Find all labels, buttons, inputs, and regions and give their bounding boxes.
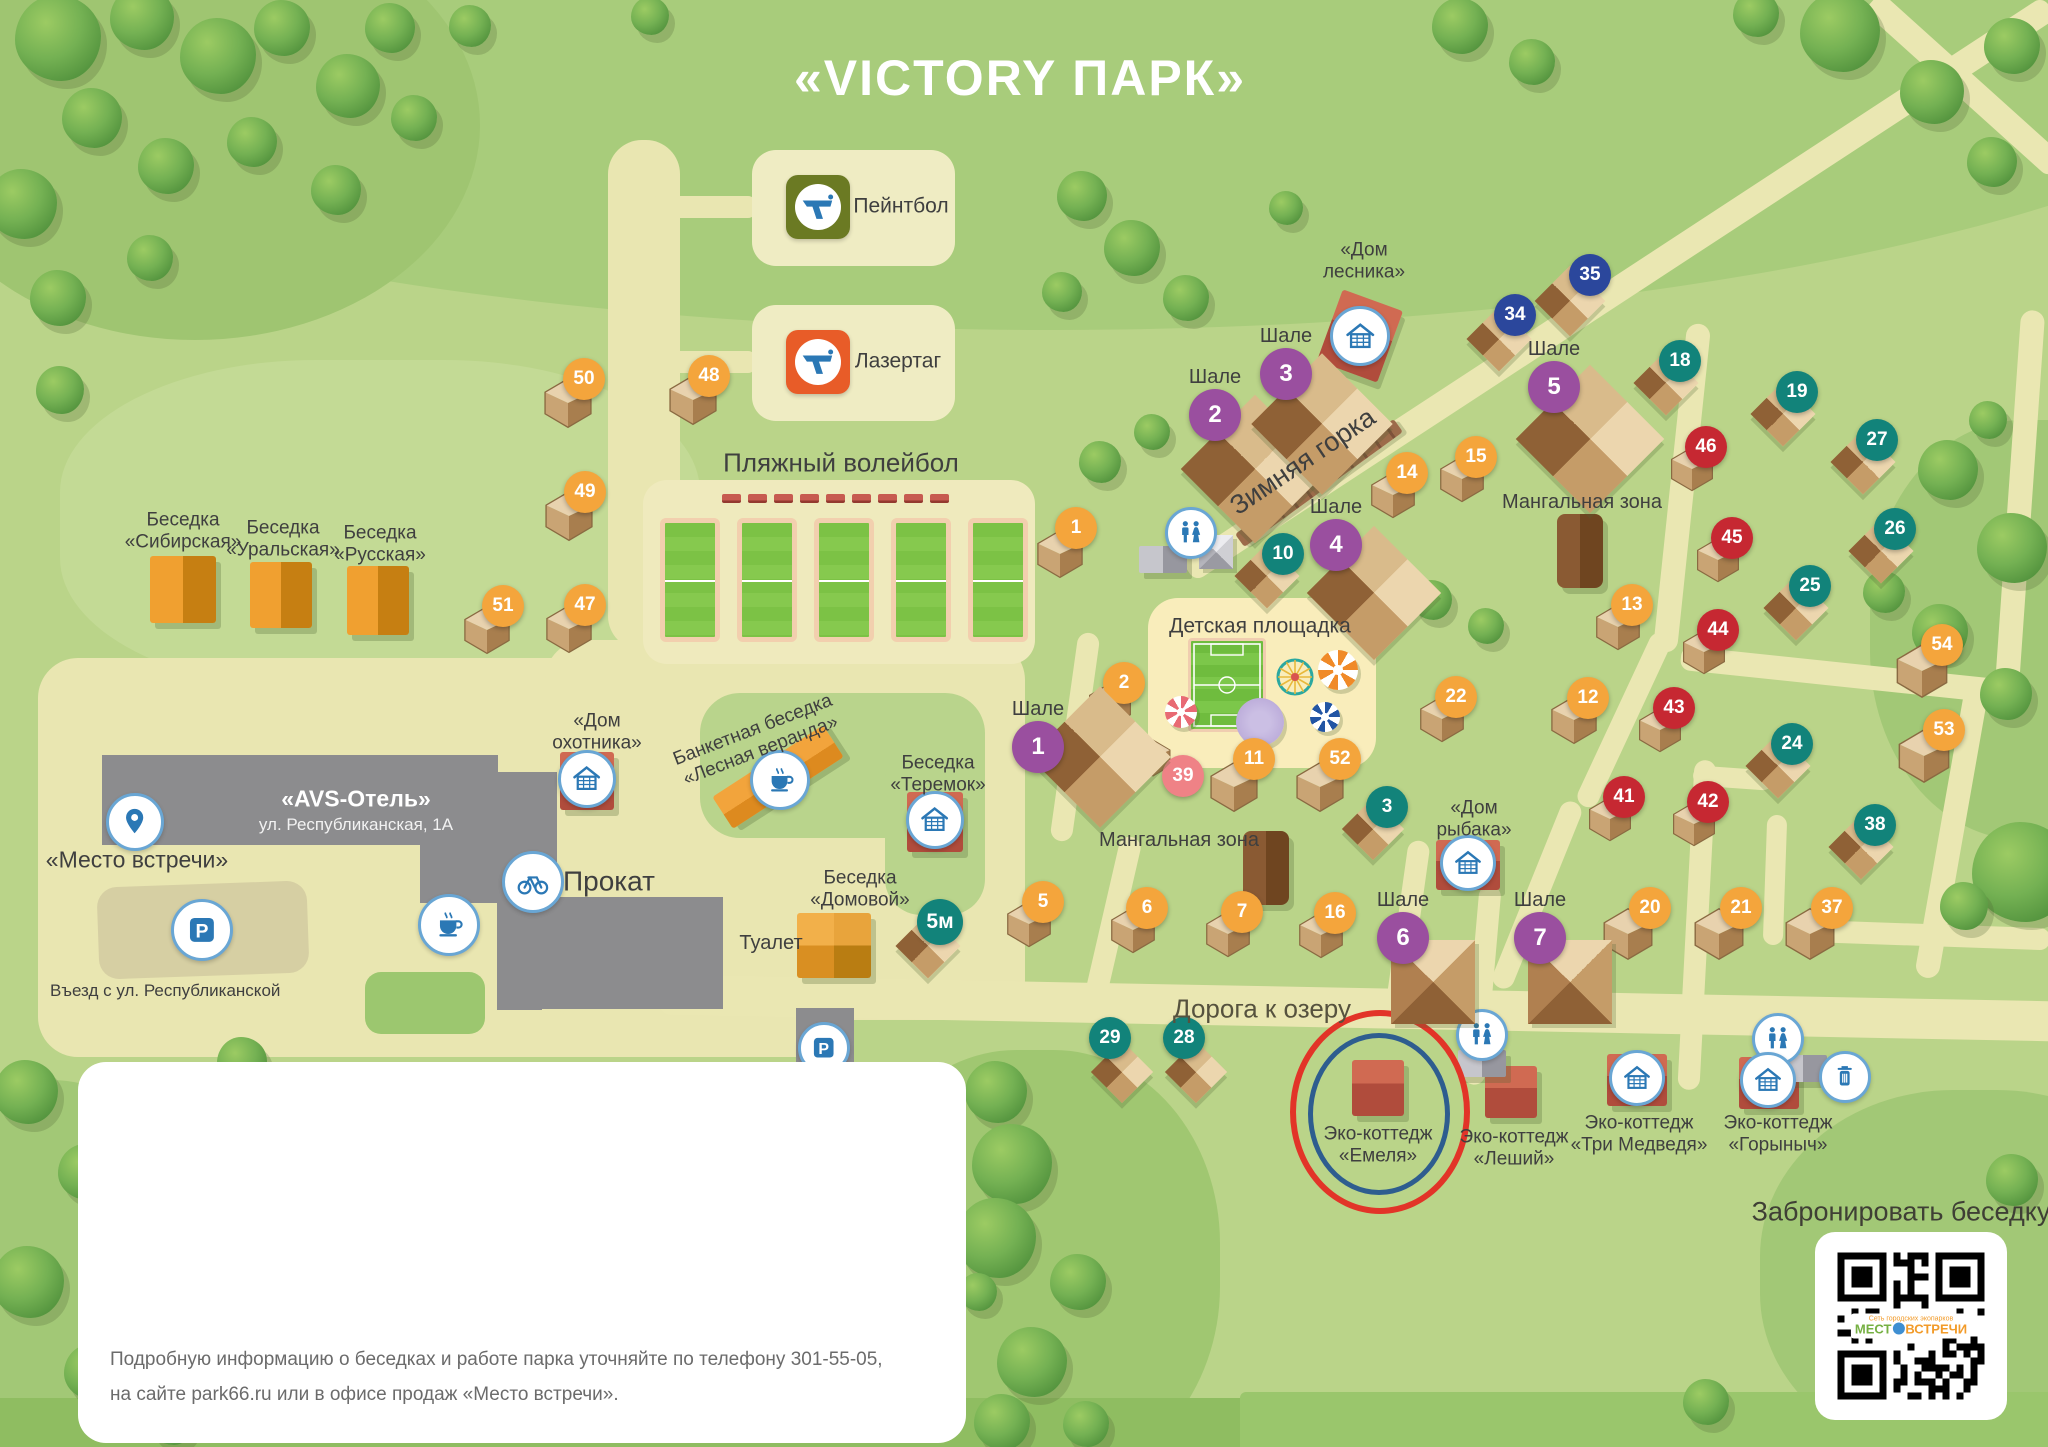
tree [1980, 668, 2032, 720]
map-label: Эко-коттедж«Емеля» [1324, 1124, 1433, 1169]
map-label: Беседка«Русская» [334, 523, 426, 568]
carousel-hub [1321, 713, 1328, 720]
map-label: Детская площадка [1169, 615, 1351, 640]
tree [1063, 1401, 1109, 1447]
tree [1984, 18, 2040, 74]
tree [1042, 272, 1082, 312]
tree [1683, 1379, 1729, 1425]
bench [800, 494, 819, 503]
tree [1269, 191, 1303, 225]
plaza-area [648, 196, 756, 218]
map-label: Прокат [563, 864, 655, 897]
marker-43: 43 [1653, 687, 1695, 729]
marker-47: 47 [564, 584, 606, 626]
tree [15, 0, 101, 81]
bike-icon [502, 851, 564, 913]
wc-icon [1165, 507, 1217, 559]
bench [722, 494, 741, 503]
map-label: Дорога к озеру [1173, 994, 1351, 1025]
map-label: Туалет [739, 932, 802, 956]
marker-52: 52 [1319, 738, 1361, 780]
marker-35: 35 [1569, 254, 1611, 296]
qr-code: Сеть городских экопарков МЕСТВСТРЕЧИ [1815, 1232, 2007, 1420]
marker-16: 16 [1314, 892, 1356, 934]
marker-7: 7 [1514, 912, 1566, 964]
tree [311, 165, 361, 215]
gazebo-uralskaya [250, 562, 312, 628]
carousel [1318, 650, 1358, 690]
mangal-zone-building [1557, 514, 1603, 588]
tree [1969, 401, 2007, 439]
map-label: Мангальная зона [1099, 829, 1259, 853]
court-net-line [665, 580, 715, 582]
legend-note-line2: на сайте park66.ru или в офисе продаж «М… [110, 1384, 619, 1405]
park-title: «VICTORY ПАРК» [794, 49, 1246, 107]
marker-37: 37 [1811, 887, 1853, 929]
tree [180, 18, 256, 94]
map-label: Пляжный волейбол [723, 448, 959, 479]
parking-icon: P [171, 899, 233, 961]
house-icon [1330, 306, 1390, 366]
marker-2: 2 [1189, 389, 1241, 441]
marker-48: 48 [688, 355, 730, 397]
marker-44: 44 [1697, 609, 1739, 651]
marker-49: 49 [564, 471, 606, 513]
tree [1163, 275, 1209, 321]
map-label: «Место встречи» [46, 846, 228, 873]
marker-54: 54 [1921, 624, 1963, 666]
marker-18: 18 [1659, 340, 1701, 382]
marker-5: 5 [1528, 361, 1580, 413]
marker-29: 29 [1089, 1017, 1131, 1059]
tree [1057, 171, 1107, 221]
carousel-hub [1333, 665, 1343, 675]
tree [391, 95, 437, 141]
marker-14: 14 [1386, 452, 1428, 494]
emelya-highlight-ring-blue [1308, 1033, 1450, 1195]
map-label: «Домлесника» [1323, 240, 1405, 285]
volleyball-court [737, 518, 797, 642]
tree [1050, 1254, 1106, 1310]
marker-45: 45 [1711, 517, 1753, 559]
house-icon [1609, 1050, 1665, 1106]
chalet-label: Шале [1189, 366, 1241, 390]
marker-15: 15 [1455, 436, 1497, 478]
svg-text:P: P [819, 1041, 830, 1058]
hotel-building [540, 897, 723, 1009]
map-label: Эко-коттедж«Три Медведя» [1571, 1113, 1708, 1158]
carousel [1165, 696, 1197, 728]
house-icon [558, 750, 616, 808]
map-label: «AVS-Отель» [281, 785, 431, 812]
marker-27: 27 [1856, 419, 1898, 461]
marker-50: 50 [563, 358, 605, 400]
volleyball-court [814, 518, 874, 642]
ferris-wheel [1274, 656, 1316, 698]
tree [1918, 440, 1978, 500]
map-label: «Домрыбака» [1436, 798, 1511, 843]
tree [1977, 513, 2047, 583]
tree [127, 235, 173, 281]
marker-38: 38 [1854, 804, 1896, 846]
bench [904, 494, 923, 503]
lawn-island [365, 972, 485, 1034]
marker-20: 20 [1629, 887, 1671, 929]
court-net-line [819, 580, 869, 582]
tree [997, 1327, 1067, 1397]
marker-6: 6 [1126, 887, 1168, 929]
map-label: «Домохотника» [552, 711, 641, 756]
marker-12: 12 [1567, 677, 1609, 719]
marker-11: 11 [1233, 738, 1275, 780]
hotel-building [497, 898, 542, 1010]
bench [930, 494, 949, 503]
court-net-line [742, 580, 792, 582]
tree [138, 138, 194, 194]
tree [316, 54, 380, 118]
marker-4: 4 [1310, 519, 1362, 571]
gazebo-sibirskaya [150, 556, 216, 623]
tree [1967, 137, 2017, 187]
marker-3: 3 [1366, 786, 1408, 828]
carousel [1310, 702, 1340, 732]
map-label: Въезд с ул. Республиканской [50, 981, 280, 1001]
tree [956, 1198, 1036, 1278]
gun-icon [795, 184, 841, 230]
map-label: Эко-коттедж«Леший» [1460, 1127, 1569, 1172]
tree [36, 366, 84, 414]
bench [826, 494, 845, 503]
tree [1079, 441, 1121, 483]
map-label: Беседка«Домовой» [810, 868, 909, 913]
marker-34: 34 [1494, 294, 1536, 336]
marker-6: 6 [1377, 912, 1429, 964]
booking-title: Забронировать беседку [1752, 1197, 2048, 1228]
marker-51: 51 [482, 585, 524, 627]
house-icon [1740, 1052, 1796, 1108]
tree [62, 88, 122, 148]
house-icon [906, 791, 964, 849]
gazebo-domovoy-building [797, 913, 871, 978]
marker-5м: 5м [917, 899, 963, 945]
tree [1432, 0, 1488, 54]
marker-41: 41 [1603, 776, 1645, 818]
chalet-label: Шале [1310, 496, 1362, 520]
marker-25: 25 [1789, 565, 1831, 607]
bench [878, 494, 897, 503]
food-icon [418, 894, 480, 956]
tree [227, 117, 277, 167]
paintball-icon [786, 175, 850, 239]
tree [449, 5, 491, 47]
marker-22: 22 [1435, 676, 1477, 718]
bench [774, 494, 793, 503]
pin-icon [106, 793, 164, 851]
volleyball-court [891, 518, 951, 642]
marker-10: 10 [1262, 533, 1304, 575]
marker-53: 53 [1923, 709, 1965, 751]
gazebo-russkaya [347, 566, 409, 635]
qr-logo: Сеть городских экопарков МЕСТВСТРЕЧИ [1851, 1314, 1971, 1339]
tree [631, 0, 669, 35]
chalet-label: Шале [1377, 889, 1429, 913]
marker-1: 1 [1012, 721, 1064, 773]
chalet-label: Шале [1514, 889, 1566, 913]
trash-icon [1819, 1051, 1871, 1103]
tree [1900, 60, 1964, 124]
map-label: Беседка«Сибирская» [125, 510, 242, 555]
marker-24: 24 [1771, 723, 1813, 765]
marker-7: 7 [1221, 891, 1263, 933]
house-icon [1440, 835, 1496, 891]
bench [852, 494, 871, 503]
marker-19: 19 [1776, 371, 1818, 413]
qr-logo-title: МЕСТВСТРЕЧИ [1855, 1323, 1967, 1337]
carousel-hub [1177, 708, 1185, 716]
marker-21: 21 [1720, 887, 1762, 929]
victory-park-map: PP 50 48 49 51 47 1 2 11 5 [0, 0, 2048, 1447]
map-label: Беседка«Теремок» [890, 753, 985, 798]
tree [965, 1061, 1027, 1123]
map-label: Пейнтбол [853, 195, 948, 220]
map-label: ул. Республиканская, 1А [259, 815, 453, 835]
volleyball-court [968, 518, 1028, 642]
court-net-line [973, 580, 1023, 582]
marker-42: 42 [1687, 781, 1729, 823]
bench [748, 494, 767, 503]
chalet-label: Шале [1260, 325, 1312, 349]
legend-note-line1: Подробную информацию о беседках и работе… [110, 1349, 883, 1370]
marker-1: 1 [1055, 507, 1097, 549]
svg-text:P: P [196, 920, 209, 942]
tree [1468, 608, 1504, 644]
tree [365, 3, 415, 53]
tree [974, 1394, 1030, 1447]
marker-13: 13 [1611, 584, 1653, 626]
chalet-label: Шале [1012, 698, 1064, 722]
tree [254, 0, 310, 56]
tree [1134, 414, 1170, 450]
marker-39: 39 [1162, 755, 1204, 797]
tree [1104, 220, 1160, 276]
marker-3: 3 [1260, 348, 1312, 400]
tree [30, 270, 86, 326]
chalet-label: Шале [1528, 338, 1580, 362]
lasertag-icon [786, 330, 850, 394]
map-label: Мангальная зона [1502, 491, 1662, 515]
tree [972, 1124, 1052, 1204]
map-label: Беседка«Уральская» [226, 518, 340, 563]
tree [1940, 882, 1988, 930]
marker-26: 26 [1874, 508, 1916, 550]
map-label: Лазертаг [855, 350, 941, 375]
legend-note: Подробную информацию о беседках и работе… [110, 1342, 883, 1412]
map-label: Эко-коттедж«Горыныч» [1724, 1113, 1833, 1158]
court-net-line [896, 580, 946, 582]
tree [1509, 39, 1555, 85]
volleyball-court [660, 518, 720, 642]
marker-46: 46 [1685, 426, 1727, 468]
gun-icon [795, 339, 841, 385]
marker-5: 5 [1022, 881, 1064, 923]
